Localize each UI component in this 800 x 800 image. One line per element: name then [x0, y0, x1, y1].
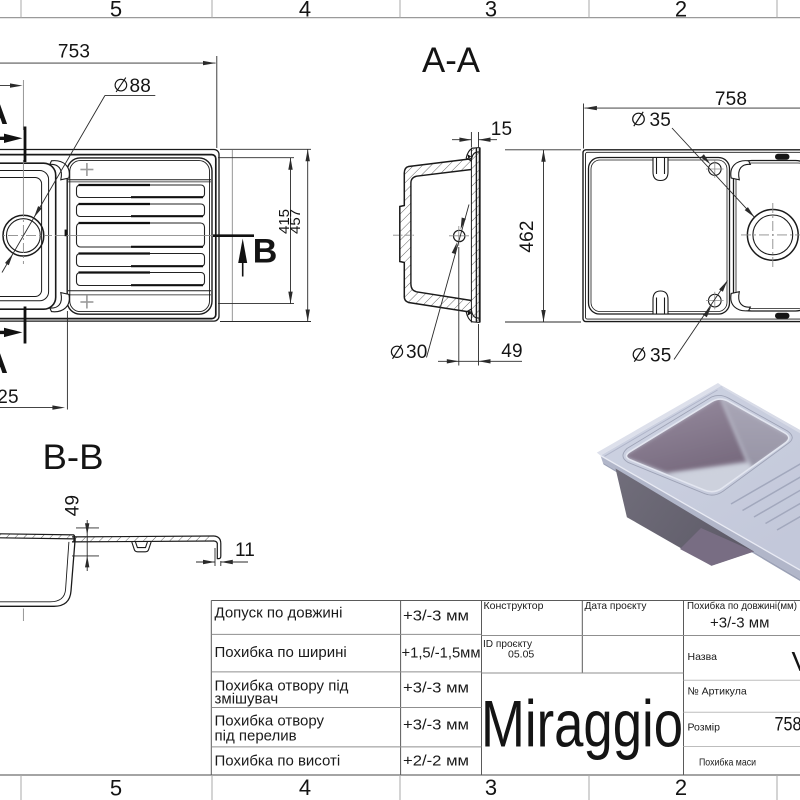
svg-text:2: 2 [675, 0, 687, 22]
svg-text:758: 758 [775, 714, 800, 736]
svg-text:Miraggio: Miraggio [481, 687, 683, 761]
svg-text:11: 11 [235, 540, 255, 561]
svg-text:4: 4 [299, 775, 311, 800]
svg-text:4: 4 [299, 0, 311, 22]
svg-text:+3/-3 мм: +3/-3 мм [710, 615, 769, 632]
svg-text:2: 2 [675, 775, 687, 800]
svg-text:Похибка по довжині(мм): Похибка по довжині(мм) [687, 600, 797, 612]
svg-text:Похибка по ширині: Похибка по ширині [215, 644, 347, 661]
svg-text:під перелив: під перелив [215, 728, 297, 745]
svg-text:5: 5 [110, 0, 122, 22]
svg-text:Розмір: Розмір [688, 722, 721, 734]
svg-text:+3/-3 мм: +3/-3 мм [403, 680, 469, 697]
svg-text:49: 49 [63, 495, 84, 517]
svg-text:15: 15 [491, 119, 513, 140]
svg-text:+3/-3 мм: +3/-3 мм [403, 717, 469, 734]
svg-text:3: 3 [485, 0, 497, 22]
svg-text:Похибка по висоті: Похибка по висоті [215, 753, 341, 770]
svg-text:25: 25 [0, 387, 19, 408]
svg-text:V: V [792, 646, 800, 677]
svg-text:B: B [253, 233, 278, 271]
svg-text:457: 457 [287, 209, 304, 234]
svg-text:462: 462 [517, 220, 538, 252]
svg-text:A-A: A-A [422, 41, 481, 80]
svg-text:35: 35 [650, 110, 672, 131]
svg-text:A: A [0, 94, 8, 131]
svg-text:змішувач: змішувач [215, 691, 279, 708]
svg-text:Назва: Назва [688, 651, 718, 663]
svg-text:Допуск по довжині: Допуск по довжині [215, 605, 343, 622]
svg-text:№ Артикула: № Артикула [688, 686, 747, 698]
svg-text:49: 49 [501, 341, 523, 362]
svg-text:30: 30 [406, 342, 428, 363]
svg-text:5: 5 [110, 776, 122, 800]
svg-text:B-B: B-B [43, 438, 104, 477]
svg-text:+1,5/-1,5мм: +1,5/-1,5мм [402, 645, 481, 662]
svg-text:Дата проєкту: Дата проєкту [585, 600, 648, 612]
svg-text:753: 753 [58, 42, 90, 63]
svg-text:758: 758 [715, 89, 747, 110]
svg-text:A: A [0, 343, 8, 380]
svg-text:35: 35 [650, 346, 672, 367]
svg-text:Конструктор: Конструктор [484, 600, 544, 612]
svg-text:+3/-3 мм: +3/-3 мм [403, 608, 469, 625]
svg-text:05.05: 05.05 [508, 649, 534, 661]
svg-text:Похибка маси: Похибка маси [699, 757, 756, 769]
svg-text:88: 88 [130, 76, 152, 97]
svg-text:+2/-2 мм: +2/-2 мм [403, 753, 469, 770]
svg-text:3: 3 [485, 775, 497, 800]
